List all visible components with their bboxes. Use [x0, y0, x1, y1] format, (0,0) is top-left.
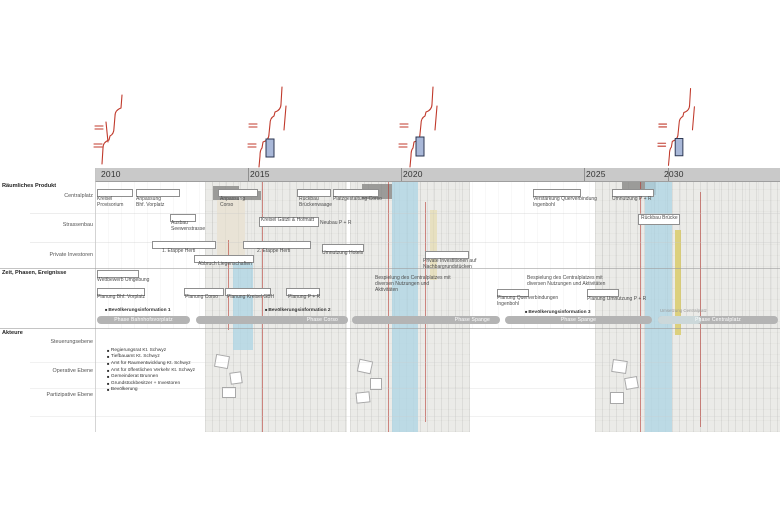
year-label-2020: 2020 — [403, 169, 423, 179]
actor-list: ■Regierungsrat Kt. Schwyz ■Tiefbauamt Kt… — [107, 347, 195, 393]
annotation-abbruch-liegenschaften: Abbruch Liegenschaften — [198, 262, 268, 268]
phase-bar-centralplatz: Phase Centralplatz — [658, 316, 778, 324]
phase-bar-spange-2: Phase Spange — [505, 316, 652, 324]
building-footprint — [357, 359, 373, 375]
highlighted-building — [675, 138, 683, 155]
annotation-etappe2: 2. Etappe Herti — [257, 249, 301, 255]
row-divider — [30, 416, 780, 417]
timeline-diagram: 2010 2015 2020 2025 2030 Räumliches Prod… — [0, 0, 780, 520]
annotation-neubau-pr: Neubau P + R — [320, 221, 360, 227]
year-label-2015: 2015 — [250, 169, 270, 179]
annotation-anpassung-bhf: Anpassung Bhf. Vorplatz — [136, 197, 180, 209]
annotation-umnutzung-hotels: Umnutzung Hotels — [322, 251, 372, 257]
annotation-verstaerkung-querverbindung: Verstärkung Querverbindung Ingenbohl — [533, 197, 597, 209]
annotation-planung-corso: Planung Corso — [185, 295, 229, 301]
section-sketch-2020 — [396, 84, 448, 168]
actor-bullet-icon: ■ — [107, 361, 109, 366]
highlighted-building — [416, 137, 424, 156]
year-label-2010: 2010 — [101, 169, 121, 179]
phase-bar-corso: Phase Corso — [196, 316, 348, 324]
section-divider — [0, 268, 780, 269]
event-bevoelkerungsinformation-1: ■Bevölkerungsinformation 1 — [105, 307, 171, 313]
annotation-anpassung-corso: Anpassung Corso — [220, 197, 260, 209]
event-bevoelkerungsinformation-2: ■Bevölkerungsinformation 2 — [265, 307, 331, 313]
row-label-private-investoren: Private Investoren — [20, 252, 93, 258]
annotation-planung-bhf: Planung Bhf. Vorplatz — [97, 295, 157, 301]
building-footprint — [229, 371, 243, 385]
actor-item: ■Regierungsrat Kt. Schwyz — [107, 347, 195, 354]
phase-caption: Umsetzung Centralplatz — [660, 308, 730, 313]
annotation-platzgestaltung-corso: Platzgestaltung Corso — [333, 197, 393, 203]
event-bevoelkerungsinformation-3: ■Bevölkerungsinformation 3 — [525, 309, 591, 315]
annotation-kreisel-gaetzli: Kreisel Gätzli & Hofmatt — [261, 218, 319, 224]
annotation-planung-gbh: Planung Kreisel GBH — [227, 295, 283, 301]
annotation-wettbewerb: Wettbewerb Umgebung — [97, 278, 167, 284]
annotation-bespielung-2: Bespielung des Centralplatzes mit divers… — [527, 276, 607, 288]
phase-bar-spange-1: Phase Spange — [352, 316, 500, 324]
row-label-partizipative-ebene: Partizipative Ebene — [20, 392, 93, 398]
row-label-steuerungsebene: Steuerungsebene — [20, 339, 93, 345]
actor-bullet-icon: ■ — [107, 348, 109, 353]
annotation-planung-querverbindungen: Planung Querverbindungen Ingenbohl — [497, 296, 559, 308]
annotation-kreisel-provisorium: Kreisel Provisorium — [97, 197, 135, 209]
actor-item: ■Grundstückbesitzer + Investoren — [107, 380, 195, 387]
annotation-planung-pr: Planung P + R — [288, 295, 328, 301]
annotation-etappe1: 1. Etappe Herti — [162, 249, 206, 255]
section-divider — [0, 328, 780, 329]
building-footprint — [610, 392, 624, 404]
section-sketch-2030 — [656, 84, 704, 168]
section-sketch-2015 — [246, 84, 296, 168]
row-divider — [30, 242, 780, 243]
year-label-2030: 2030 — [664, 169, 684, 179]
highlighted-building — [266, 139, 274, 157]
year-label-2025: 2025 — [586, 169, 606, 179]
actor-bullet-icon: ■ — [107, 387, 109, 392]
section-title-raeumliches-produkt: Räumliches Produkt — [2, 183, 56, 189]
annotation-bespielung-1: Bespielung des Centralplatzes mit divers… — [375, 276, 453, 294]
actor-item: ■Amt für Raumentwicklung Kt. Schwyz — [107, 360, 195, 367]
actor-bullet-icon: ■ — [107, 354, 109, 359]
annotation-planung-umnutzung-pr: Planung Umnutzung P + R — [587, 297, 651, 303]
section-sketch-2010 — [92, 92, 140, 168]
actor-item: ■Amt für öffentlichen Verkehr Kt. Schwyz — [107, 367, 195, 374]
year-tick — [248, 168, 249, 181]
actor-bullet-icon: ■ — [107, 368, 109, 373]
row-label-strassenbau: Strassenbau — [20, 222, 93, 228]
annotation-umnutzung-pr: Umnutzung P + R — [612, 197, 658, 203]
year-tick — [584, 168, 585, 181]
rail-divider — [95, 168, 96, 432]
row-label-operative-ebene: Operative Ebene — [20, 368, 93, 374]
year-tick — [401, 168, 402, 181]
building-footprint — [355, 391, 370, 403]
actor-bullet-icon: ■ — [107, 381, 109, 386]
section-title-akteure: Akteure — [2, 330, 23, 336]
annotation-rueckbau-brueckenwaage: Rückbau Brückenwaage — [299, 197, 335, 209]
annotation-private-investitionen: Private Investitionen auf Nachbargrundst… — [423, 259, 489, 271]
actor-item: ■Bevölkerung — [107, 387, 195, 394]
actor-item: ■Tiefbauamt Kt. Schwyz — [107, 354, 195, 361]
actor-item: ■Gemeinderat Brunnen — [107, 373, 195, 380]
annotation-rueckbau-bruecke: Rückbau Brücke — [641, 216, 681, 222]
section-title-zeit-phasen: Zeit, Phasen, Ereignisse — [2, 270, 66, 276]
actor-bullet-icon: ■ — [107, 374, 109, 379]
annotation-ausbau-seewenstrasse: Ausbau Seewenstrasse — [171, 221, 211, 233]
phase-bar-bahnhofsvorplatz: Phase Bahnhofsvorplatz — [97, 316, 190, 324]
row-label-centralplatz: Centralplatz — [20, 193, 93, 199]
